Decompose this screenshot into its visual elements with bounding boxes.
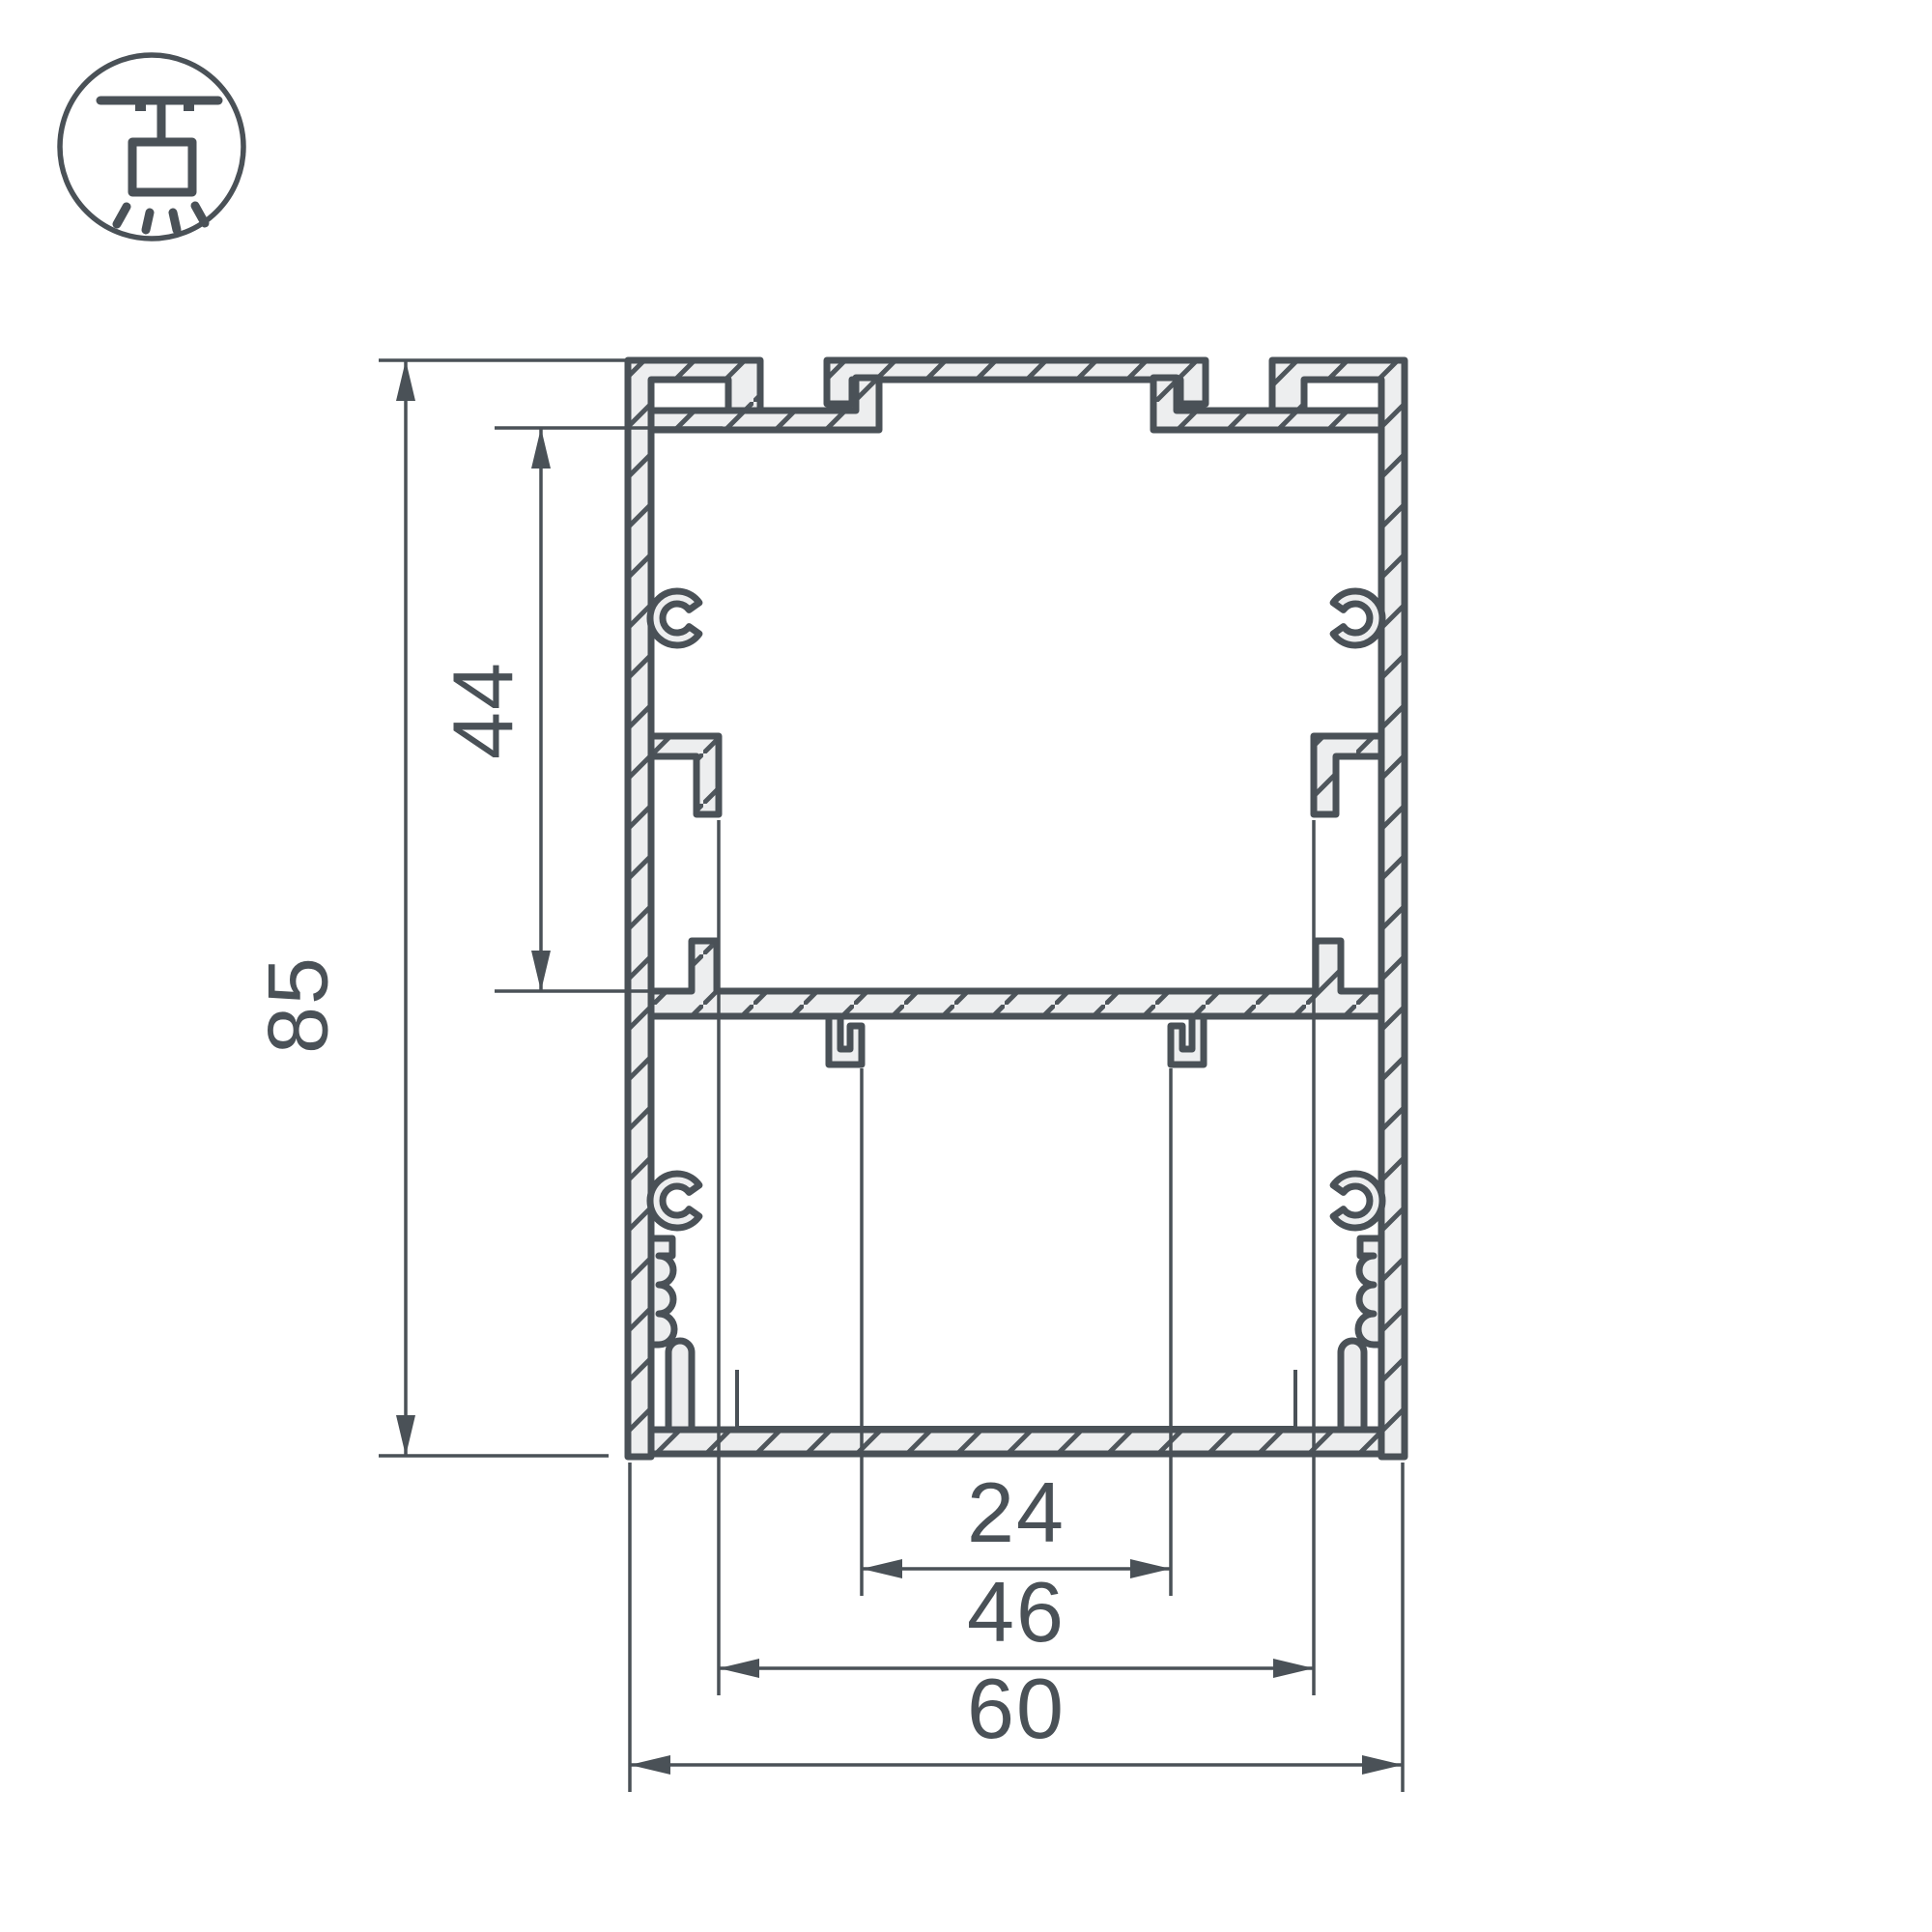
wall-scallops-left: [651, 1238, 674, 1345]
dim-label-46: 46: [967, 1564, 1065, 1660]
wall-scallops-right: [1358, 1238, 1381, 1345]
dim-overall-height: 85: [250, 360, 627, 1456]
screw-boss-lower-left: [650, 1174, 699, 1228]
profile-cross-section-drawing: 85 44 24 46: [0, 0, 1932, 1932]
top-plateau: [827, 360, 1206, 404]
icon-lamp-box: [132, 142, 192, 192]
screw-boss-lower-right: [1333, 1174, 1382, 1228]
dim-middle-width: 46: [719, 820, 1314, 1695]
diffuser-lip-right: [1341, 1341, 1364, 1430]
partition-hook-right: [1171, 1016, 1204, 1065]
dim-label-85: 85: [250, 955, 346, 1054]
upper-hook-left: [651, 736, 719, 814]
screw-boss-upper-right: [1333, 591, 1382, 645]
pendant-mount-icon: [60, 55, 243, 239]
icon-light-rays: [117, 206, 205, 230]
bottom-floor: [651, 1430, 1381, 1454]
dimensions: 85 44 24 46: [250, 360, 1404, 1792]
dim-label-60: 60: [967, 1661, 1065, 1756]
middle-partition: [651, 941, 1381, 1016]
partition-hook-left: [829, 1016, 862, 1065]
upper-hook-right: [1314, 736, 1381, 814]
drawing-canvas: 85 44 24 46: [0, 0, 1932, 1932]
dim-label-24: 24: [967, 1464, 1065, 1560]
dim-inner-width: 24: [862, 1068, 1171, 1596]
dim-label-44: 44: [436, 661, 531, 759]
dim-inner-height: 44: [436, 428, 724, 991]
diffuser-lip-left: [668, 1341, 692, 1430]
screw-boss-upper-left: [650, 591, 699, 645]
profile-body: [628, 360, 1405, 1457]
diffuser-seat-channel: [737, 1370, 1295, 1428]
